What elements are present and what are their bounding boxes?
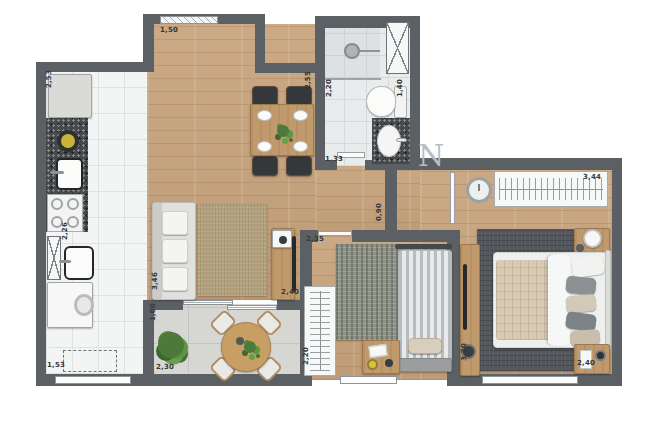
plate <box>293 141 308 152</box>
dim-label: 1,40 <box>397 79 404 97</box>
dim-label: 0,90 <box>376 203 383 221</box>
headboard <box>605 250 611 350</box>
dim-label: 2,30 <box>156 364 174 371</box>
desk <box>362 340 400 374</box>
burner <box>67 198 79 210</box>
dining-chair <box>252 156 278 176</box>
dim-label: 3,46 <box>152 272 159 290</box>
desk-lamp <box>367 359 378 370</box>
clock-hand <box>478 184 480 191</box>
wardrobe-hangers <box>499 178 602 200</box>
cup <box>236 337 244 345</box>
dim-label: 1,00 <box>150 303 157 321</box>
wardrobe-hangers <box>310 291 329 372</box>
bath-tap <box>396 138 407 142</box>
logo-watermark: N <box>418 141 444 171</box>
dim-label: 3,20 <box>461 343 468 361</box>
pillow <box>408 338 442 354</box>
notebook <box>368 344 387 358</box>
cabinet <box>47 236 61 280</box>
wall <box>36 62 46 386</box>
kitchen-sink <box>56 158 83 190</box>
bedroom-tv <box>463 264 467 330</box>
wall <box>420 158 622 170</box>
decor-bowl <box>595 350 606 361</box>
shower-glass <box>325 78 381 80</box>
shelf <box>395 244 452 249</box>
wall <box>36 62 150 72</box>
bedroom1-door <box>450 172 455 224</box>
dim-label: 1,53 <box>47 362 65 369</box>
burner <box>51 198 63 210</box>
balcony-table <box>221 322 271 372</box>
dim-label: 2,35 <box>306 236 324 243</box>
dim-label: 2,20 <box>303 347 310 365</box>
sliding-door <box>227 305 277 310</box>
dim-label: 2,40 <box>281 289 299 296</box>
speaker-cone <box>279 236 287 244</box>
sofa-cushion <box>162 267 188 291</box>
window <box>55 376 131 384</box>
tv <box>292 236 296 292</box>
table-lamp <box>583 229 602 248</box>
dim-label: 3,44 <box>583 174 601 181</box>
window <box>160 16 218 24</box>
dining-chair <box>286 156 312 176</box>
desk-item <box>385 359 393 367</box>
centerpiece-plant <box>277 125 289 137</box>
laundry-tap <box>59 260 71 263</box>
window <box>340 376 397 384</box>
dim-label: 2,20 <box>326 79 333 97</box>
kitchen-tap <box>50 171 64 174</box>
lamp-small <box>576 244 584 252</box>
laundry-tank <box>64 246 94 280</box>
plate <box>257 141 272 152</box>
reserved-area <box>63 350 117 372</box>
pillow <box>565 294 596 314</box>
dim-label: 2,26 <box>62 222 69 240</box>
sofa-cushion <box>162 239 188 263</box>
plate <box>293 110 308 121</box>
wall <box>315 16 325 170</box>
fruit-bowl <box>57 130 79 152</box>
pillow <box>565 275 597 295</box>
dim-label: 2,40 <box>577 360 595 367</box>
washing-machine <box>47 282 93 328</box>
bedroom2-rug <box>336 244 402 340</box>
washer-door <box>74 294 94 316</box>
sliding-door <box>183 300 233 305</box>
wall <box>352 230 460 242</box>
wall <box>612 158 622 386</box>
wall-clock <box>466 177 492 203</box>
plate <box>257 110 272 121</box>
living-rug <box>197 204 267 296</box>
shaft <box>386 22 409 74</box>
dim-label: 2,55 <box>305 71 312 89</box>
bed-bench <box>398 358 452 372</box>
fridge <box>48 74 92 118</box>
dining-chair <box>252 86 278 106</box>
dim-label: 2,53 <box>46 70 53 88</box>
wall <box>385 170 397 232</box>
dim-label: 1,33 <box>325 156 343 163</box>
shower-head <box>344 43 360 59</box>
floor-plan: N 1,50 2,53 2,26 1,53 2,55 2,20 1,40 1,3… <box>0 0 648 432</box>
dining-table <box>250 104 314 156</box>
toilet-bowl <box>366 86 396 117</box>
sofa-cushion <box>162 211 188 235</box>
table-plant <box>244 341 256 353</box>
balcony-plant <box>158 332 184 358</box>
speaker <box>272 230 292 248</box>
dim-label: 1,50 <box>160 27 178 34</box>
window <box>482 376 578 384</box>
quilt <box>496 260 550 340</box>
